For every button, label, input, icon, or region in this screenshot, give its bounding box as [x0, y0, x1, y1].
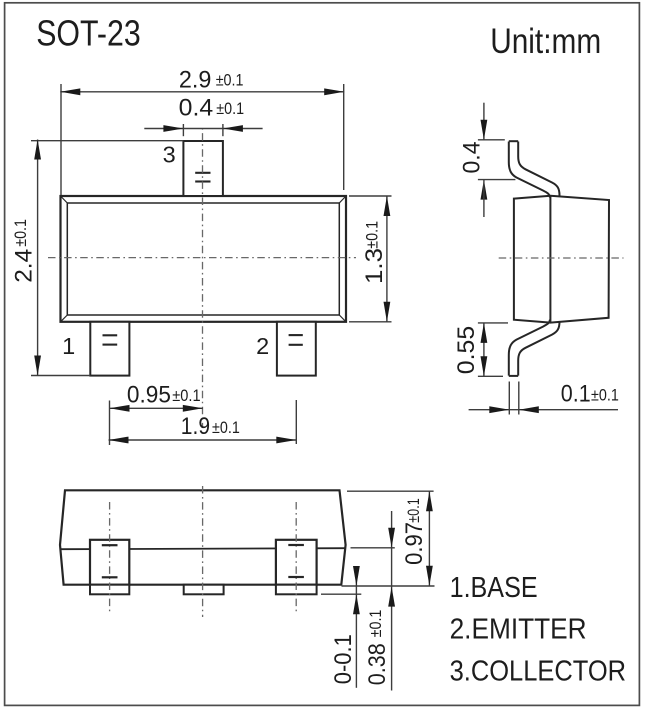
- svg-text:2.EMITTER: 2.EMITTER: [450, 614, 587, 646]
- svg-text:±0.1: ±0.1: [591, 387, 619, 405]
- svg-text:±0.1: ±0.1: [216, 100, 244, 118]
- svg-text:0.1: 0.1: [561, 381, 591, 408]
- svg-text:0.4: 0.4: [179, 95, 214, 122]
- svg-text:±0.1: ±0.1: [212, 419, 240, 437]
- svg-text:±0.1: ±0.1: [405, 498, 423, 523]
- svg-text:1: 1: [62, 333, 75, 359]
- svg-text:0.4: 0.4: [459, 142, 486, 174]
- svg-text:±0.1: ±0.1: [364, 221, 382, 249]
- svg-text:±0.1: ±0.1: [367, 610, 385, 638]
- svg-text:1.3: 1.3: [361, 248, 388, 284]
- svg-text:3: 3: [163, 141, 176, 167]
- svg-text:±0.1: ±0.1: [216, 72, 244, 90]
- svg-text:1.BASE: 1.BASE: [450, 572, 538, 604]
- svg-text:±0.1: ±0.1: [172, 387, 200, 405]
- svg-text:1.9: 1.9: [181, 413, 210, 440]
- svg-text:0-0.1: 0-0.1: [330, 634, 357, 684]
- svg-text:2.4: 2.4: [10, 249, 37, 283]
- svg-text:0.55: 0.55: [453, 326, 480, 375]
- svg-text:2: 2: [256, 333, 269, 359]
- svg-text:SOT-23: SOT-23: [36, 13, 141, 54]
- svg-text:0.95: 0.95: [127, 381, 171, 408]
- svg-text:2.9: 2.9: [179, 66, 212, 93]
- svg-text:0.38: 0.38: [364, 643, 391, 685]
- svg-text:0.97: 0.97: [401, 522, 428, 565]
- svg-text:±0.1: ±0.1: [12, 219, 30, 247]
- svg-text:Unit:mm: Unit:mm: [490, 22, 601, 61]
- svg-text:3.COLLECTOR: 3.COLLECTOR: [450, 655, 626, 687]
